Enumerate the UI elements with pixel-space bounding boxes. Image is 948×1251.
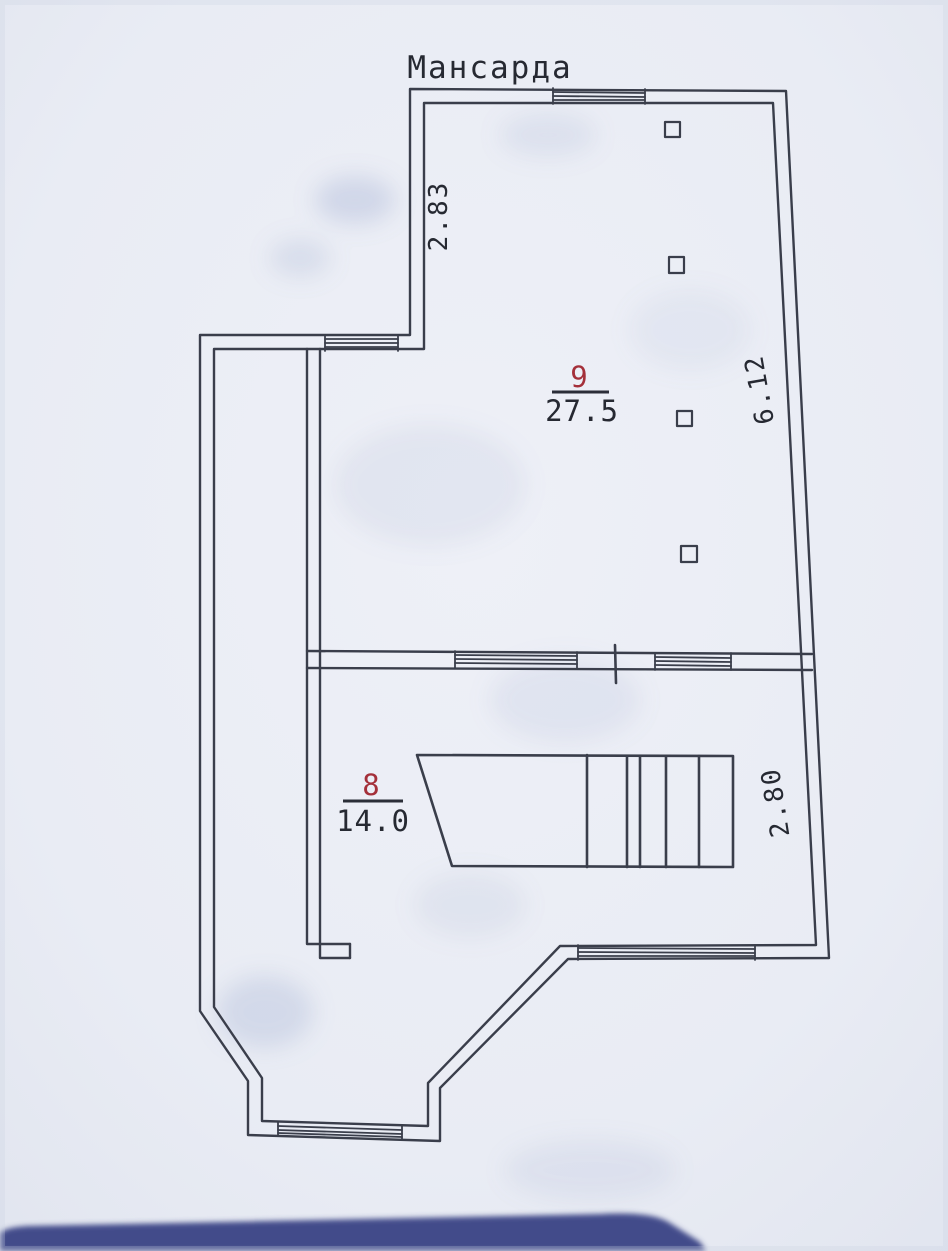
room9-area: 27.5 xyxy=(545,394,619,428)
room8-area: 14.0 xyxy=(336,804,410,838)
room9-number: 9 xyxy=(570,360,587,394)
floor-plan-canvas: Мансарда 9 27.5 8 14.0 2.83 6.12 2.80 xyxy=(0,0,948,1251)
plan-title: Мансарда xyxy=(407,50,572,86)
dimension-upper-left: 2.83 xyxy=(424,181,454,252)
door-mark xyxy=(615,645,616,683)
room8-number: 8 xyxy=(362,768,379,802)
scanned-floor-plan-page: Мансарда 9 27.5 8 14.0 2.83 6.12 2.80 xyxy=(0,0,948,1251)
paper-background xyxy=(0,0,948,1251)
